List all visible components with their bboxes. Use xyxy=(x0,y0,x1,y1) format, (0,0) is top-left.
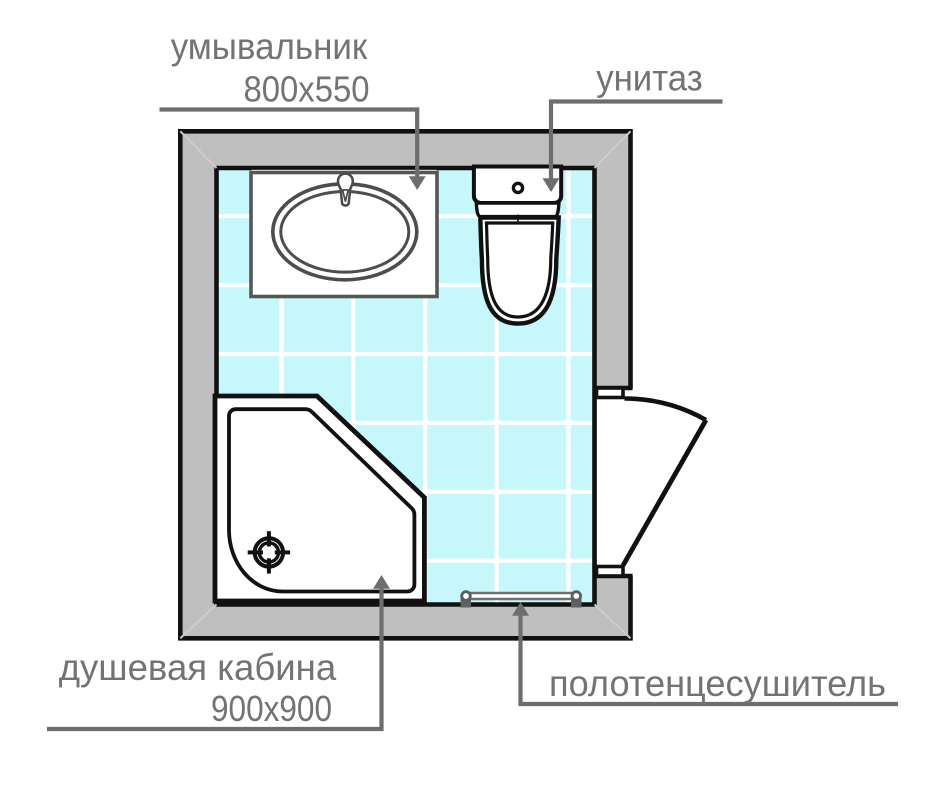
svg-text:800x550: 800x550 xyxy=(244,69,370,110)
svg-text:душевая кабина: душевая кабина xyxy=(59,647,337,688)
svg-text:900x900: 900x900 xyxy=(211,688,332,729)
svg-text:полотенцесушитель: полотенцесушитель xyxy=(549,663,886,704)
svg-text:унитаз: унитаз xyxy=(596,57,703,98)
svg-text:умывальник: умывальник xyxy=(171,26,368,67)
